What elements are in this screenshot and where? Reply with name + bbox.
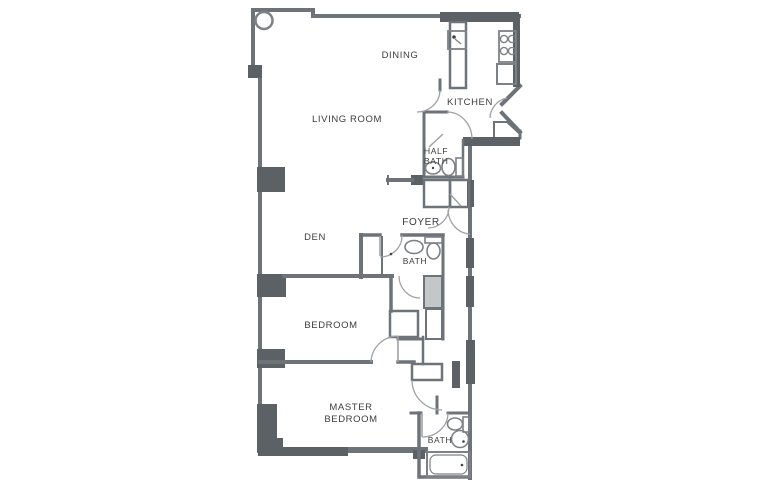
entry-diagonal-upper	[502, 86, 520, 104]
label-master-bedroom-2: BEDROOM	[324, 414, 377, 425]
bottom-dark-wall	[258, 447, 348, 456]
structural-blocks	[248, 12, 520, 459]
bath-door-hinge-dot	[390, 253, 393, 256]
label-half-bath-1: HALF	[424, 146, 448, 156]
label-kitchen: KITCHEN	[447, 97, 493, 108]
entry-closet	[494, 122, 520, 138]
master-bath-sink-icon	[452, 431, 469, 448]
kitchen-top-thick-wall	[440, 12, 519, 22]
bedroom-closet	[390, 311, 418, 337]
left-step-block	[248, 65, 262, 78]
right-wall-block-2	[466, 276, 474, 307]
master-closet	[412, 364, 442, 380]
foyer-closet-door-leaf	[450, 194, 461, 206]
column-block-den	[257, 167, 285, 192]
label-den: DEN	[304, 232, 326, 243]
outer-walls	[253, 10, 520, 478]
bath-toilet-icon	[425, 237, 442, 259]
right-wall-block-1	[466, 238, 474, 268]
hall-closet	[426, 309, 442, 339]
label-living-room: LIVING ROOM	[312, 114, 382, 125]
bathtub-icon	[427, 452, 470, 477]
floor-plan-canvas: DINING KITCHEN LIVING ROOM HALF BATH FOY…	[0, 0, 768, 480]
label-bedroom: BEDROOM	[304, 320, 357, 331]
label-master-bedroom-1: MASTER	[329, 402, 372, 413]
hall-shaft-closet	[424, 276, 442, 308]
floor-plan: DINING KITCHEN LIVING ROOM HALF BATH FOY…	[0, 0, 768, 480]
label-bath: BATH	[403, 256, 427, 266]
master-bath-door-arc	[422, 413, 448, 437]
foyer-closet-right	[450, 180, 469, 207]
column-block-bedroom	[257, 274, 286, 297]
fixtures	[256, 12, 517, 477]
foyer-closet-left	[424, 180, 450, 207]
label-half-bath-2: BATH	[424, 156, 448, 166]
bedroom-door-arc	[399, 276, 420, 298]
corridor-foyer-door-arc	[447, 112, 472, 139]
label-dining: DINING	[382, 50, 419, 61]
master-bath-toilet-icon	[448, 417, 470, 432]
label-master-bath: BATH	[428, 435, 452, 445]
right-wall-block-3	[466, 340, 475, 384]
column-block-master	[257, 349, 285, 368]
column-icon	[256, 12, 273, 29]
master-door-arc	[371, 336, 398, 362]
closet-right-block	[452, 361, 460, 388]
bath-sink-icon	[405, 241, 423, 254]
foyer-hall-door-arc	[448, 210, 470, 234]
dining-corridor-door-arc	[417, 90, 440, 112]
label-foyer: FOYER	[402, 217, 439, 228]
